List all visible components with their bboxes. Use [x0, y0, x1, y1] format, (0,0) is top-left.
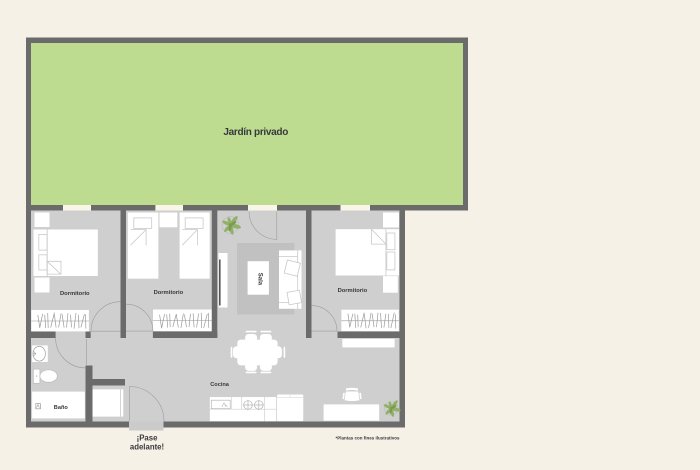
- svg-text:Dormitorio: Dormitorio: [338, 288, 368, 294]
- svg-text:Baño: Baño: [54, 405, 69, 411]
- svg-text:Jardín privado: Jardín privado: [223, 127, 288, 138]
- svg-text:Dormitorio: Dormitorio: [60, 291, 90, 297]
- svg-text:adelante!: adelante!: [130, 442, 164, 451]
- svg-text:Cocina: Cocina: [210, 382, 230, 388]
- svg-text:Dormitorio: Dormitorio: [154, 290, 184, 296]
- svg-text:*Plantas con fines ilustrativo: *Plantas con fines ilustrativos: [335, 435, 400, 440]
- svg-text:Sala: Sala: [256, 273, 262, 286]
- svg-text:¡Pase: ¡Pase: [137, 433, 158, 442]
